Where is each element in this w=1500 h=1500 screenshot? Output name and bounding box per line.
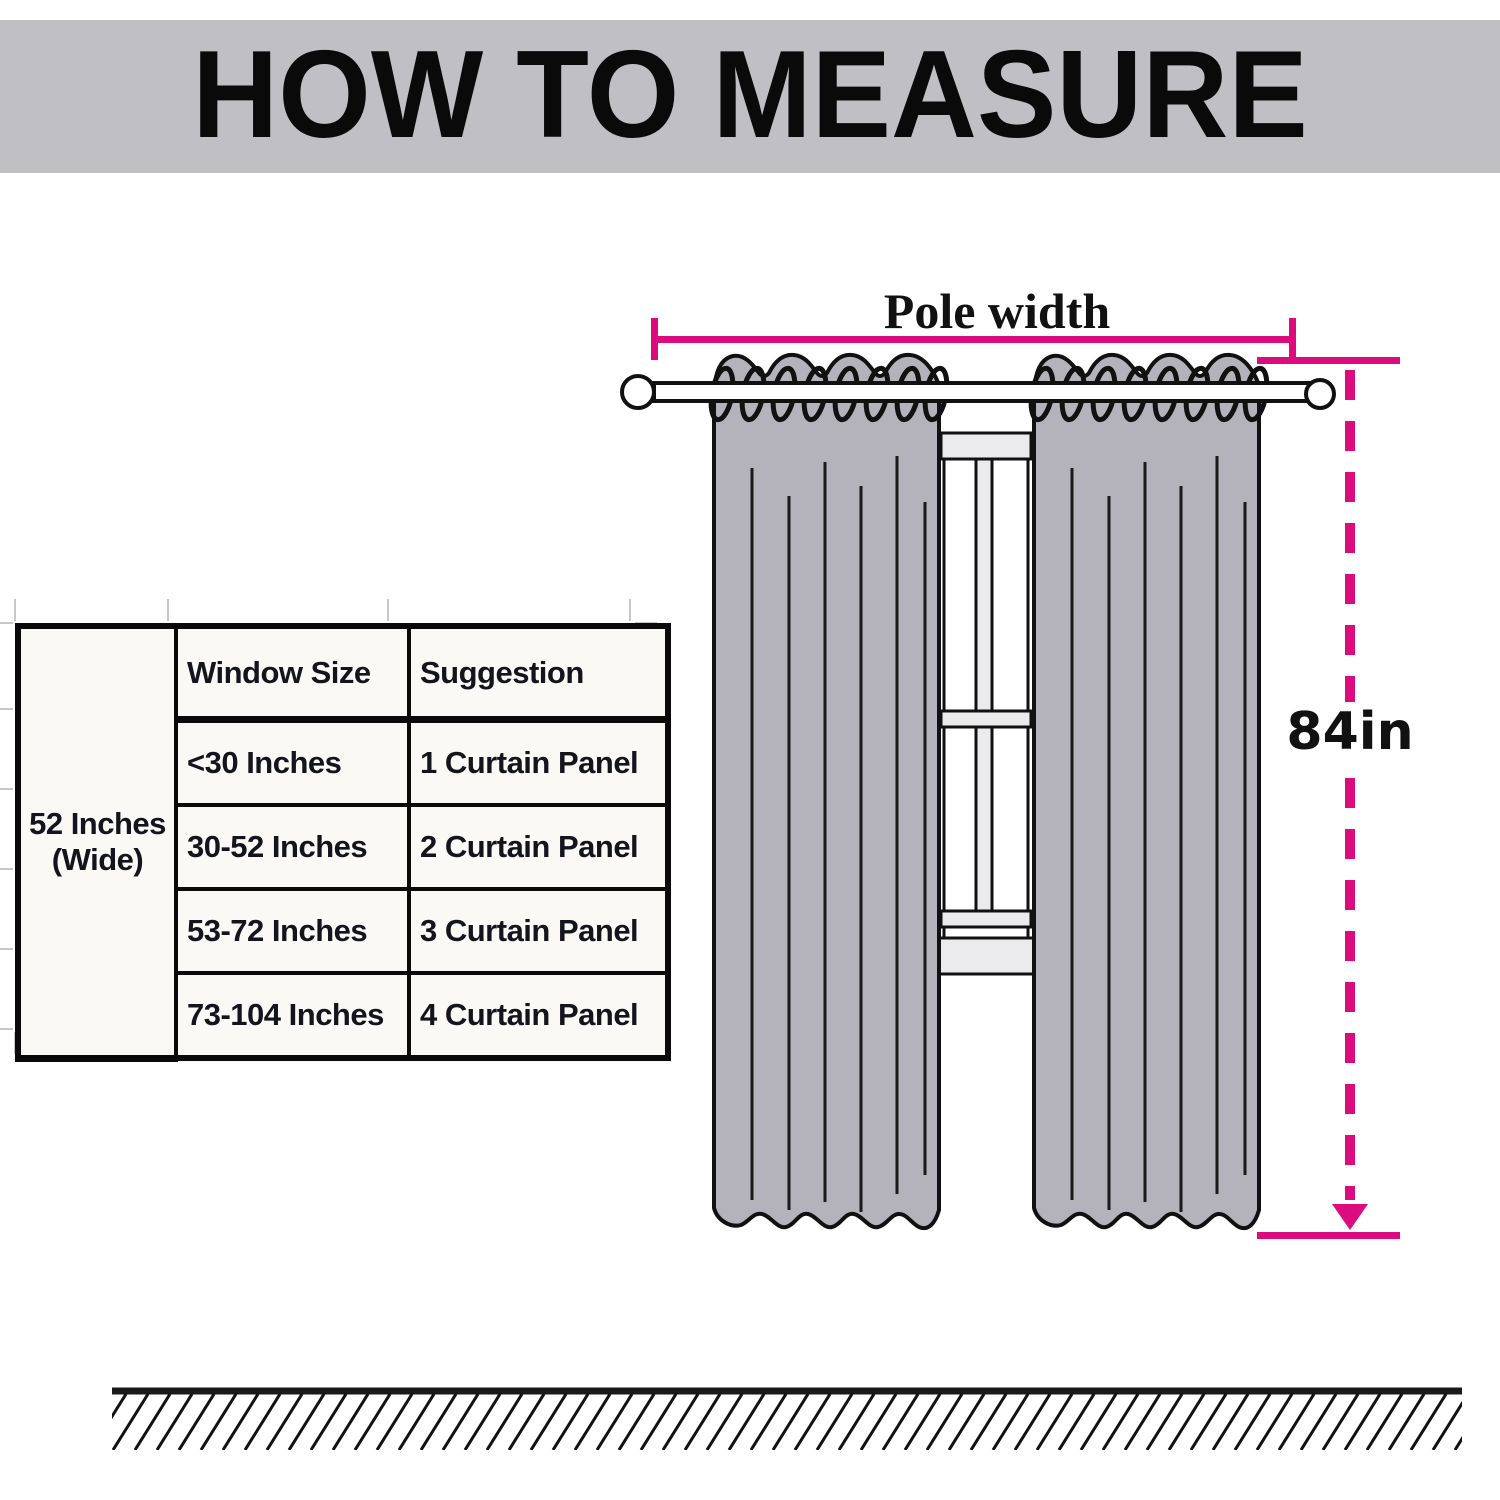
how-to-measure-infographic: HOW TO MEASURE Pole width 84in 52 Inches…	[0, 0, 1500, 1500]
window-size-cell: <30 Inches	[176, 720, 409, 806]
suggestion-cell: 1 Curtain Panel	[409, 720, 668, 806]
window-size-cell: 30-52 Inches	[176, 805, 409, 889]
header-window-size: Window Size	[176, 626, 409, 720]
suggestion-cell: 3 Curtain Panel	[409, 889, 668, 973]
window-lower-rail	[941, 911, 1031, 927]
suggestion-cell: 4 Curtain Panel	[409, 973, 668, 1058]
curtain-panel-right	[1028, 355, 1271, 1228]
suggestion-cell: 2 Curtain Panel	[409, 805, 668, 889]
window-sill	[933, 938, 1039, 974]
panel-width-line2: (Wide)	[21, 842, 174, 878]
curtain-panel-left	[708, 355, 951, 1228]
size-suggestion-table: 52 Inches (Wide) Window Size Suggestion …	[15, 623, 671, 1062]
panel-width-line1: 52 Inches	[21, 806, 174, 842]
floor	[112, 1391, 1462, 1450]
pole-width-label: Pole width	[884, 282, 1110, 340]
header-suggestion: Suggestion	[409, 626, 668, 720]
pole-finial-left	[622, 376, 654, 408]
down-arrowhead	[1332, 1204, 1368, 1230]
window-size-cell: 73-104 Inches	[176, 973, 409, 1058]
window	[933, 433, 1039, 974]
page-title: HOW TO MEASURE	[30, 20, 1470, 170]
window-size-cell: 53-72 Inches	[176, 889, 409, 973]
window-mullion	[976, 459, 992, 911]
pole-finial-right	[1306, 380, 1334, 408]
height-84in-label: 84in	[1278, 702, 1421, 762]
header-banner: HOW TO MEASURE	[0, 20, 1500, 173]
window-top-rail	[941, 433, 1031, 459]
panel-width-cell: 52 Inches (Wide)	[18, 626, 176, 1058]
window-mid-rail	[941, 711, 1031, 727]
height-measure-line	[1257, 357, 1400, 1239]
